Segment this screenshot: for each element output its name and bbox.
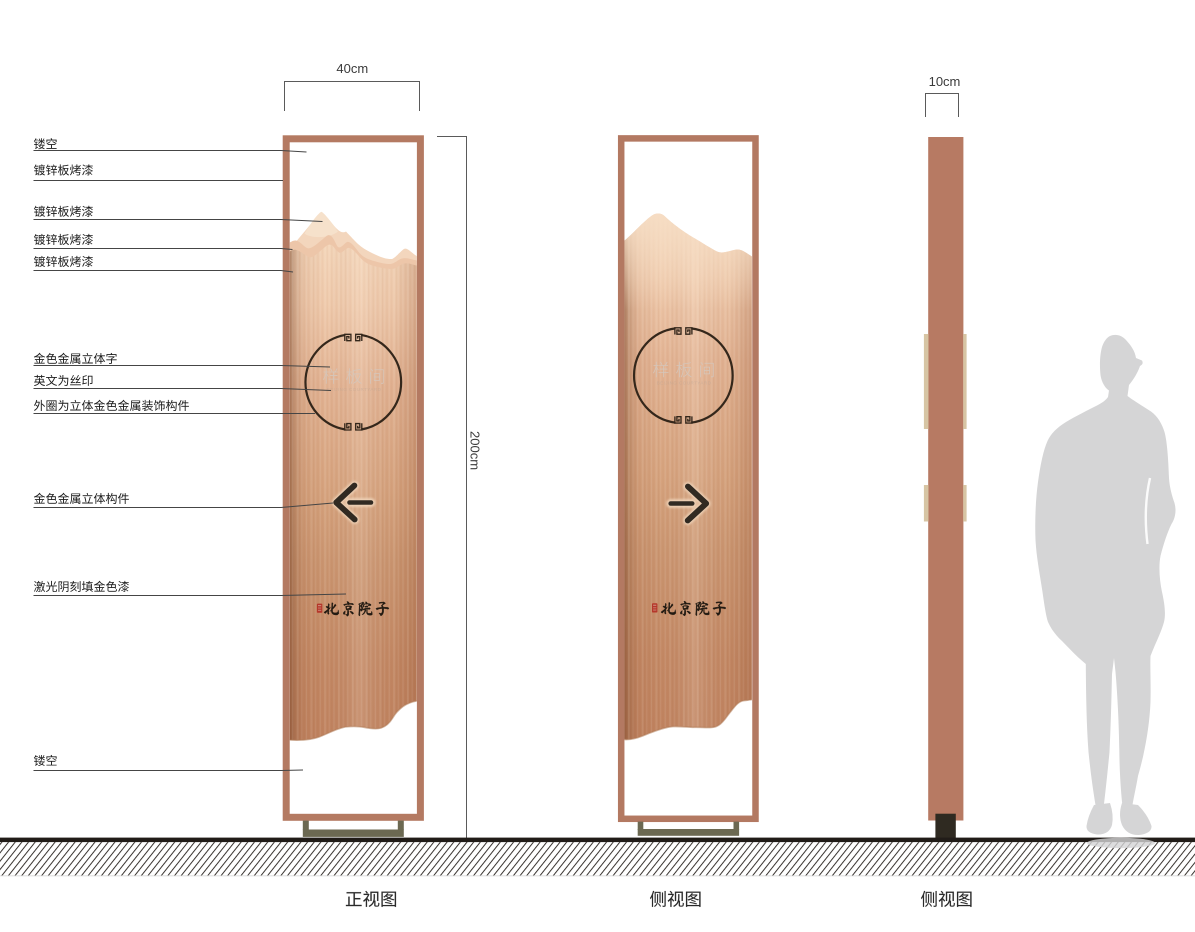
svg-text:10cm: 10cm (929, 74, 961, 89)
svg-text:40cm: 40cm (336, 61, 368, 76)
svg-text:BEIJING COURTYARD: BEIJING COURTYARD (657, 381, 712, 386)
svg-text:200cm: 200cm (468, 431, 483, 470)
svg-text:BEIJING COURTYARD: BEIJING COURTYARD (327, 387, 382, 392)
